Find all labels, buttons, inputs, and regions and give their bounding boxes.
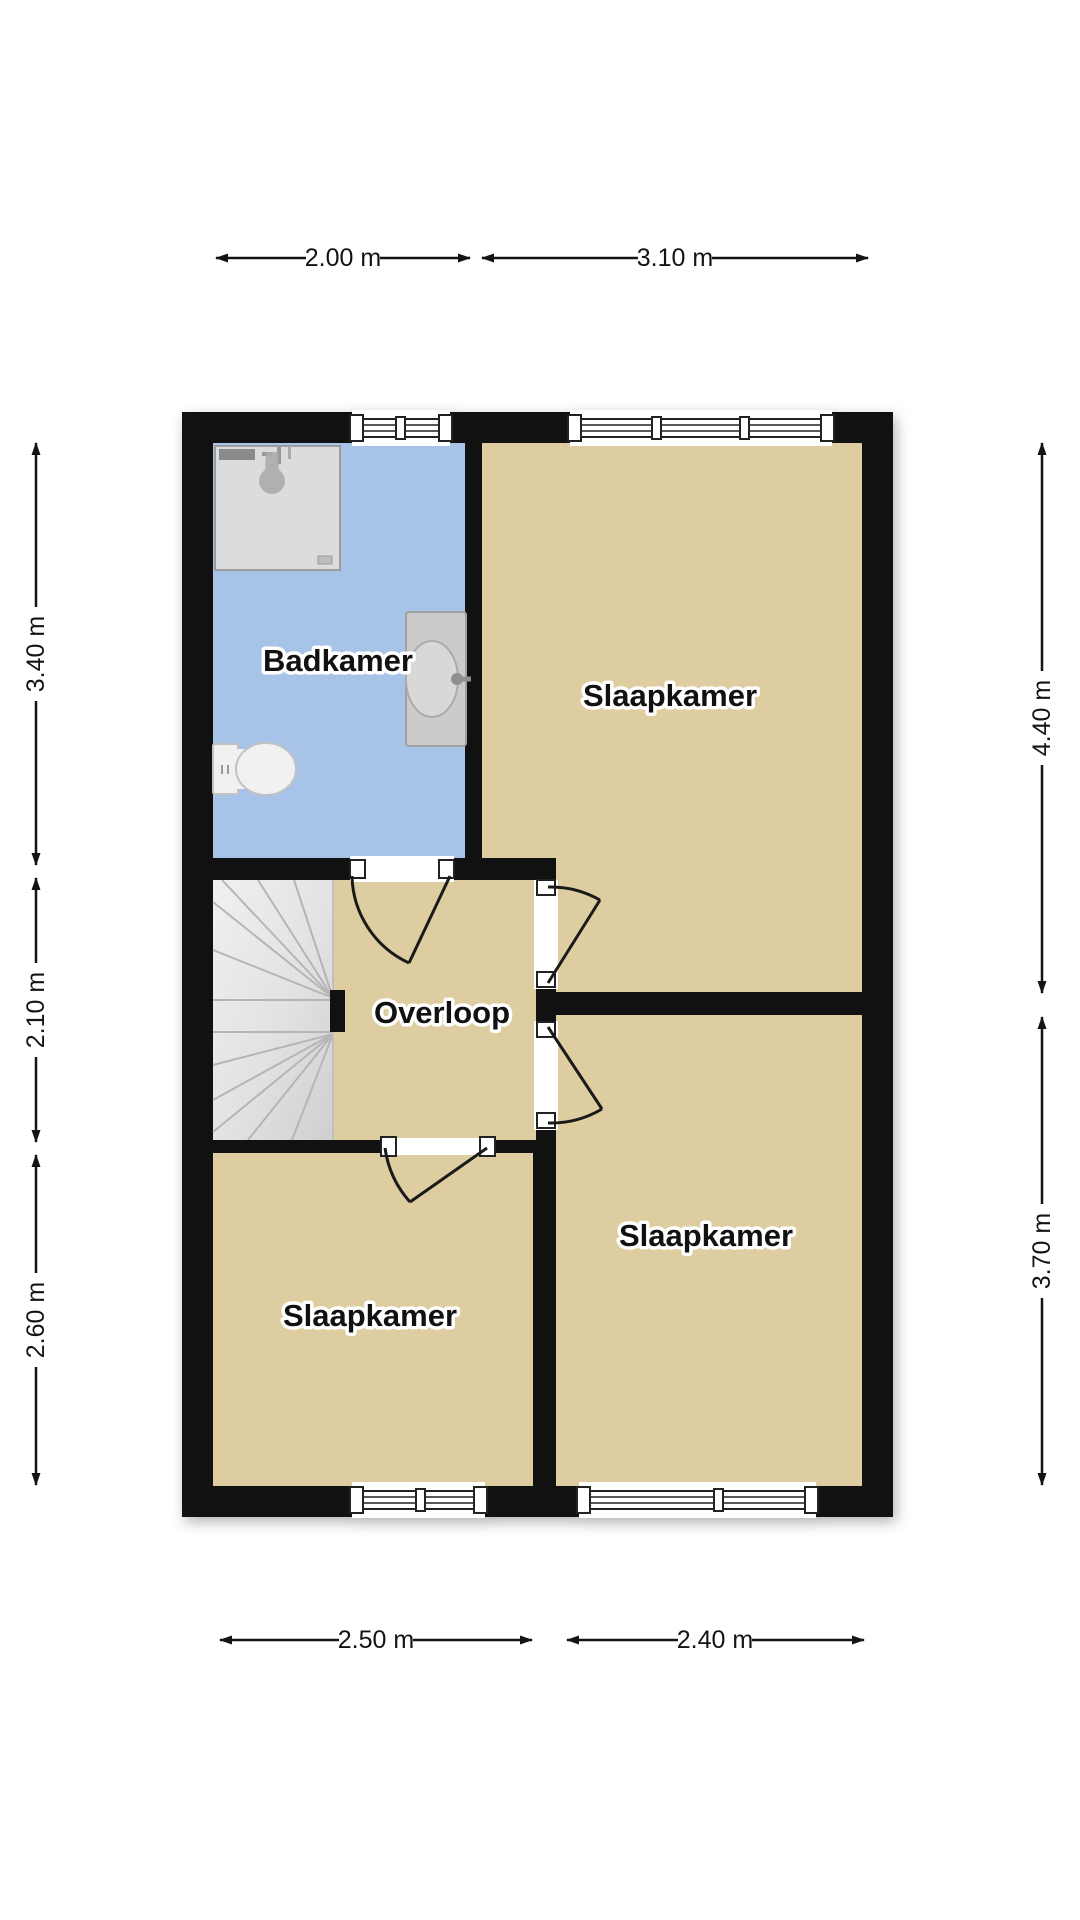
- dimension-left-3: 2.60 m: [22, 1155, 50, 1485]
- dimension-top-1: 2.00 m: [216, 244, 470, 272]
- window-frame: [581, 1491, 814, 1509]
- dimension-label: 2.60 m: [22, 1282, 50, 1358]
- dimension-label: 2.50 m: [338, 1626, 414, 1654]
- window-mullion: [714, 1489, 723, 1511]
- toilet: [213, 743, 296, 795]
- dimension-right-1: 4.40 m: [1028, 443, 1056, 993]
- window-jamb: [350, 1487, 363, 1513]
- wall-badkamer-slaapkamer: [465, 443, 482, 860]
- window-jamb: [568, 415, 581, 441]
- dimension-label: 3.40 m: [22, 616, 50, 692]
- dimension-left-1: 3.40 m: [22, 443, 50, 865]
- dimension-right-2: 3.70 m: [1028, 1017, 1056, 1485]
- dimension-label: 2.40 m: [677, 1626, 753, 1654]
- shower-controls: [219, 449, 255, 460]
- window-mullion: [416, 1489, 425, 1511]
- window-slaapkamer-bottom-left: [350, 1482, 487, 1518]
- window-jamb: [577, 1487, 590, 1513]
- floor-plan: Badkamer Slaapkamer Overloop Slaapkamer …: [0, 0, 1080, 1920]
- window-mullion: [396, 417, 405, 439]
- wall-overloop-slaapkamer: [182, 1140, 556, 1153]
- toilet-bowl: [236, 743, 296, 795]
- sink-basin: [406, 641, 458, 717]
- window-jamb: [350, 415, 363, 441]
- window-jamb: [805, 1487, 818, 1513]
- sink: [406, 612, 471, 746]
- door-jamb: [381, 1137, 396, 1156]
- toilet-tank: [213, 744, 238, 794]
- staircase: [213, 880, 333, 1140]
- dimension-bottom-1: 2.50 m: [220, 1626, 532, 1654]
- window-jamb: [474, 1487, 487, 1513]
- wall-bottom-rooms-divider: [533, 1140, 556, 1486]
- dimension-label: 3.10 m: [637, 244, 713, 272]
- dimension-label: 4.40 m: [1028, 680, 1056, 756]
- door-jamb: [350, 860, 365, 878]
- dimension-top-2: 3.10 m: [482, 244, 868, 272]
- dimension-label: 3.70 m: [1028, 1213, 1056, 1289]
- shower: [215, 446, 340, 570]
- dimension-label: 2.00 m: [305, 244, 381, 272]
- room-label-slaapkamer-top: Slaapkamer: [583, 678, 757, 713]
- window-slaapkamer-top: [568, 410, 834, 446]
- door-jamb: [537, 1113, 555, 1128]
- window-mullion: [652, 417, 661, 439]
- plan: Badkamer Slaapkamer Overloop Slaapkamer …: [182, 410, 893, 1518]
- dimension-bottom-2: 2.40 m: [567, 1626, 864, 1654]
- window-badkamer: [350, 410, 452, 446]
- room-label-slaapkamer-bottom-left: Slaapkamer: [283, 1298, 457, 1333]
- wall-right-rooms-divider: [536, 992, 893, 1015]
- door-jamb: [439, 860, 454, 878]
- window-jamb: [821, 415, 834, 441]
- room-label-slaapkamer-bottom-right: Slaapkamer: [619, 1218, 793, 1253]
- room-label-badkamer: Badkamer: [263, 643, 413, 678]
- window-slaapkamer-bottom-right: [577, 1482, 818, 1518]
- window-mullion: [740, 417, 749, 439]
- shower-riser: [288, 446, 291, 459]
- door-opening: [381, 1138, 495, 1155]
- window-jamb: [439, 415, 452, 441]
- shower-drain: [318, 556, 332, 564]
- room-label-overloop: Overloop: [374, 995, 510, 1030]
- dimension-left-2: 2.10 m: [22, 878, 50, 1142]
- wall-stair-newel: [330, 990, 345, 1032]
- staircase-floor: [213, 880, 333, 1140]
- dimension-label: 2.10 m: [22, 972, 50, 1048]
- window-frame: [572, 419, 830, 437]
